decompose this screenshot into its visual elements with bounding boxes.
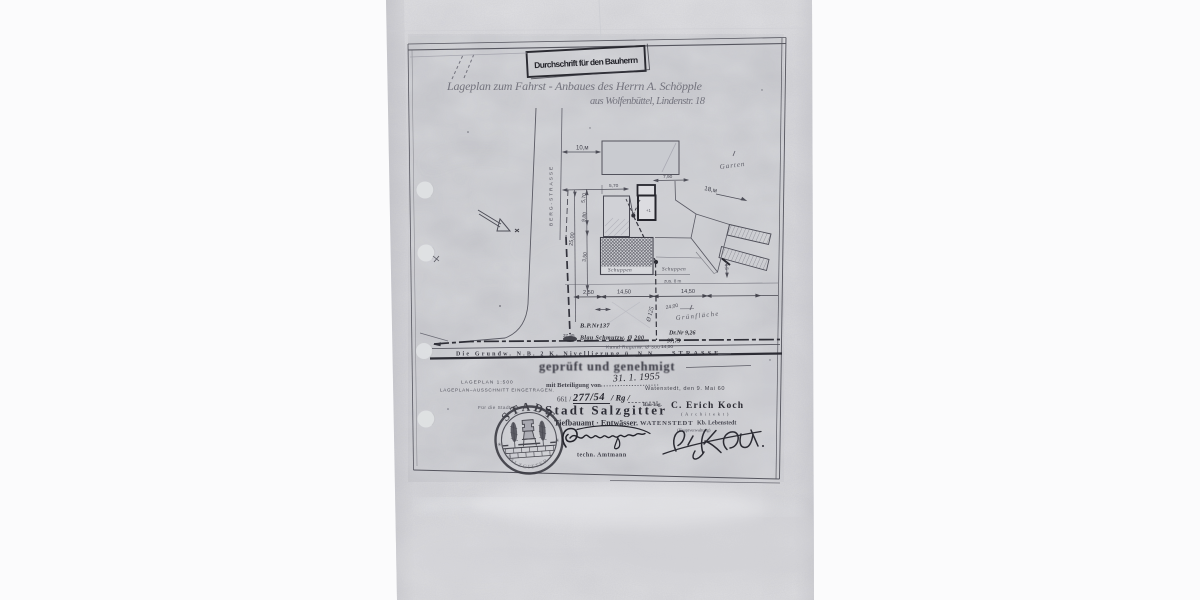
svg-text:37,95: 37,95 bbox=[563, 333, 575, 338]
svg-text:✳: ✳ bbox=[555, 438, 560, 444]
svg-text:LAGEPLAN–AUSSCHNITT EINGETRAGE: LAGEPLAN–AUSSCHNITT EINGETRAGEN. bbox=[440, 388, 554, 393]
svg-text:✳: ✳ bbox=[497, 442, 502, 448]
svg-text:7,90: 7,90 bbox=[663, 174, 673, 180]
svg-text:2,50: 2,50 bbox=[583, 290, 594, 296]
svg-text:Bau-Ing.: Bau-Ing. bbox=[643, 403, 663, 408]
svg-text:Kanal Regenw. Ø 300: Kanal Regenw. Ø 300 bbox=[606, 345, 660, 351]
svg-text:aus Wolfenbüttel, Lindenstr. 1: aus Wolfenbüttel, Lindenstr. 18 bbox=[590, 96, 706, 107]
svg-text:14,50: 14,50 bbox=[617, 290, 631, 296]
svg-text:C. Erich Koch: C. Erich Koch bbox=[671, 401, 744, 411]
svg-text:Schuppen: Schuppen bbox=[662, 268, 686, 273]
svg-text:( A r c h i t e k t ): ( A r c h i t e k t ) bbox=[681, 412, 729, 417]
svg-text:BERG-STRASSE: BERG-STRASSE bbox=[549, 165, 555, 226]
svg-text:zus. 8 m: zus. 8 m bbox=[664, 279, 682, 284]
svg-text:+1: +1 bbox=[646, 208, 651, 213]
svg-text:Dr.Nr 9,26: Dr.Nr 9,26 bbox=[668, 331, 696, 337]
svg-text:LAGEPLAN 1:500: LAGEPLAN 1:500 bbox=[461, 380, 514, 386]
svg-text:5,70: 5,70 bbox=[609, 183, 619, 189]
svg-text:Lageplan zum Fahrst - Anbaues: Lageplan zum Fahrst - Anbaues des Herrn … bbox=[446, 79, 703, 93]
svg-text:14,50: 14,50 bbox=[681, 289, 695, 295]
svg-text:Watenstedt, den 9. Mai 60: Watenstedt, den 9. Mai 60 bbox=[645, 386, 725, 392]
svg-text:Kb. Lebenstedt: Kb. Lebenstedt bbox=[697, 421, 736, 427]
svg-text:WATENSTEDT: WATENSTEDT bbox=[640, 420, 693, 427]
svg-text:Schuppen: Schuppen bbox=[608, 269, 632, 274]
svg-text:B.P.Nr137: B.P.Nr137 bbox=[579, 323, 610, 330]
svg-text:techn. Amtmann: techn. Amtmann bbox=[577, 453, 627, 459]
svg-text:10,м: 10,м bbox=[576, 146, 588, 152]
svg-text:/ Rg /: / Rg / bbox=[610, 393, 632, 403]
